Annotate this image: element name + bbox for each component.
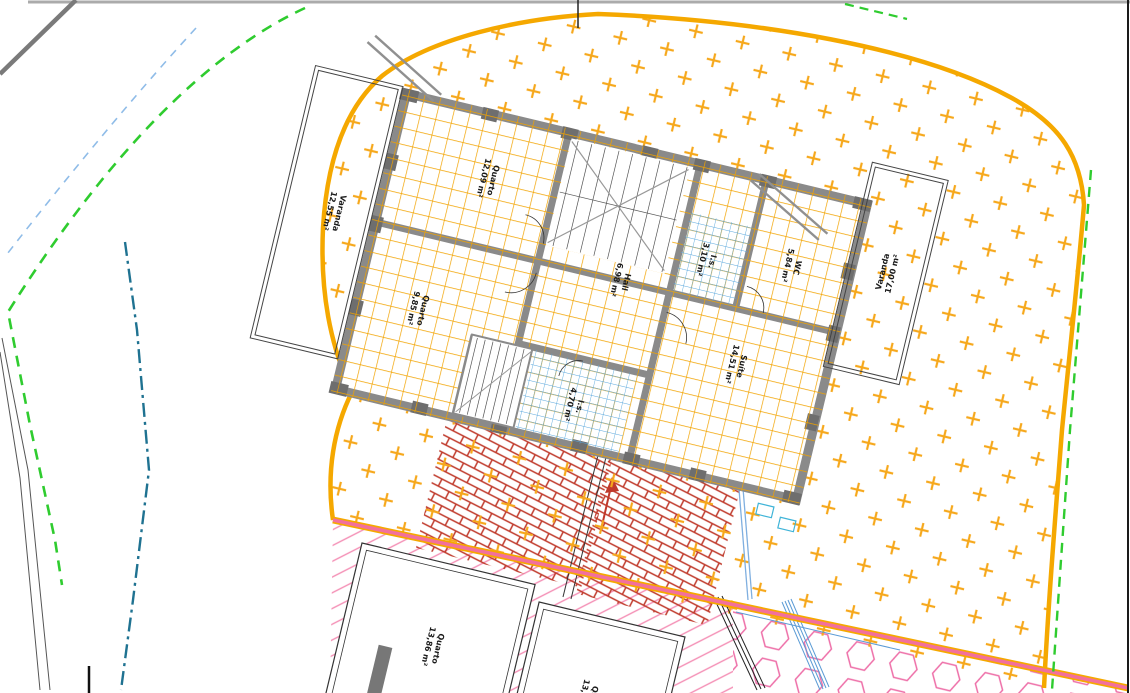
survey-dashdot-line — [121, 242, 149, 690]
road-edge-diagonal — [0, 0, 76, 74]
blue-dashed-limit — [4, 28, 196, 258]
green-dashed-limit-top — [845, 4, 907, 19]
terrain-line — [0, 352, 40, 690]
site-plan-svg: Quarto 13,86 m² Quarto 13,86 m² — [0, 0, 1130, 693]
terrain-line — [2, 338, 50, 690]
cad-viewport: Quarto 13,86 m² Quarto 13,86 m² — [0, 0, 1130, 693]
